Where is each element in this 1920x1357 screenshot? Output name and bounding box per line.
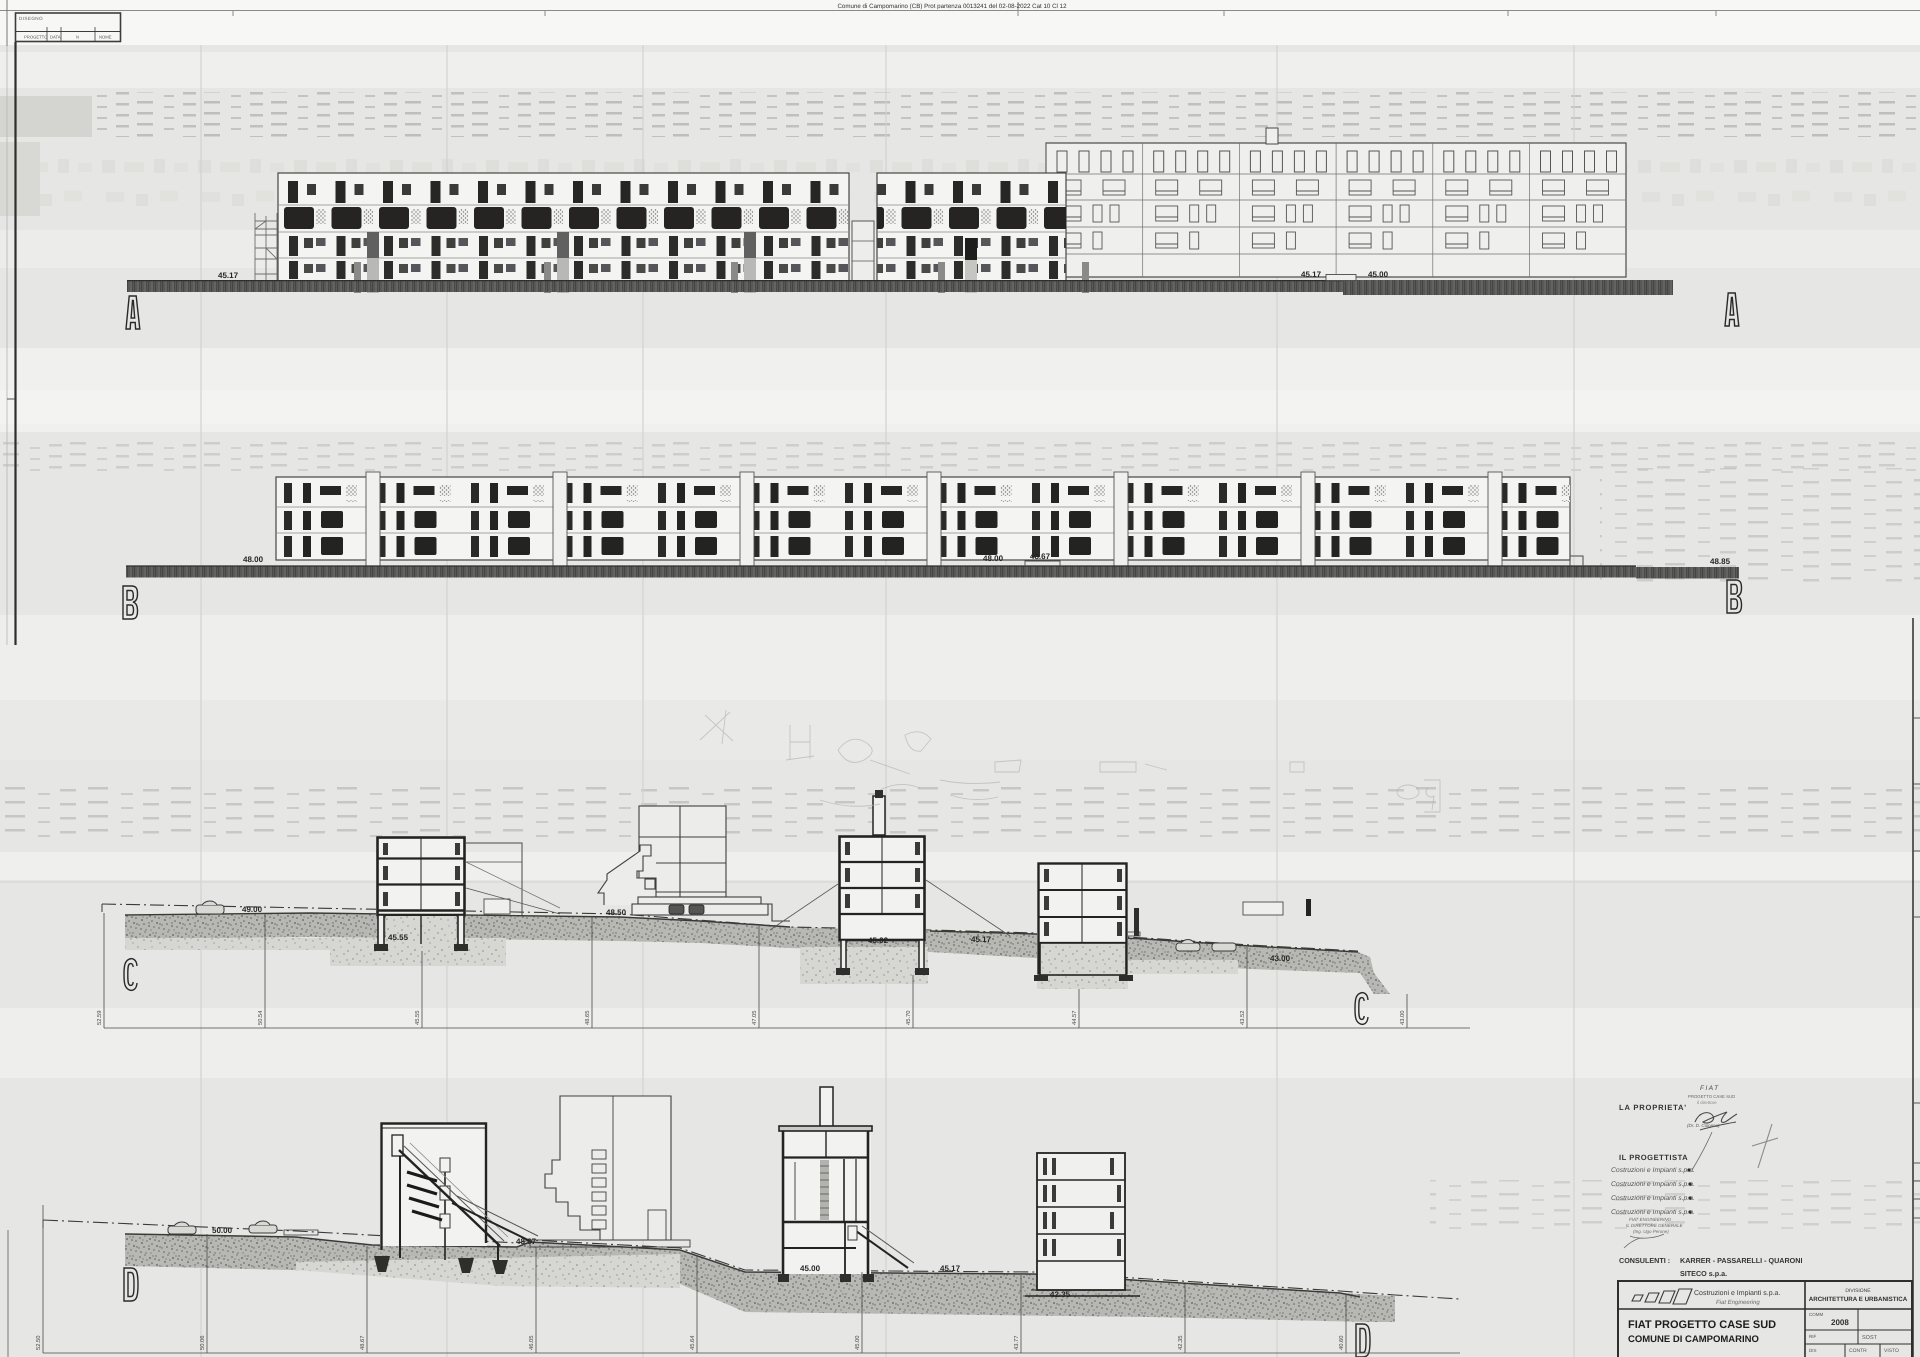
svg-text:48.65: 48.65 [584,1010,591,1025]
svg-text:47.05: 47.05 [751,1010,758,1025]
svg-text:DIS: DIS [1809,1348,1817,1353]
svg-text:FIAT ENGINEERING: FIAT ENGINEERING [1629,1217,1672,1222]
svg-text:43.52: 43.52 [1239,1010,1246,1025]
svg-text:45.00: 45.00 [854,1335,861,1350]
svg-text:48.67: 48.67 [359,1335,366,1350]
svg-text:48.67: 48.67 [1030,552,1051,561]
svg-text:IL DIRETTORE GENERALE: IL DIRETTORE GENERALE [1626,1223,1684,1228]
svg-text:45.55: 45.55 [415,1010,421,1025]
svg-text:50.00: 50.00 [212,1226,233,1235]
svg-text:Costruzioni e Impianti s.p.a.: Costruzioni e Impianti s.p.a. [1611,1167,1695,1174]
svg-text:CONTR: CONTR [1849,1348,1867,1354]
svg-text:50.54: 50.54 [257,1010,264,1025]
svg-text:IL PROGETTISTA: IL PROGETTISTA [1619,1153,1688,1162]
svg-text:45.64: 45.64 [689,1335,696,1350]
svg-text:48.00: 48.00 [983,554,1004,563]
svg-text:45.17: 45.17 [218,271,239,280]
svg-text:45.17: 45.17 [971,935,992,944]
svg-text:46.05: 46.05 [528,1335,535,1350]
svg-text:Costruzioni e Impianti s.p.a.: Costruzioni e Impianti s.p.a. [1694,1289,1780,1297]
svg-text:52.59: 52.59 [96,1010,103,1025]
svg-text:43.00: 43.00 [1270,954,1291,963]
svg-text:(Dr. D. Colonna): (Dr. D. Colonna) [1687,1123,1720,1128]
svg-text:Costruzioni e Impianti s.p.a.: Costruzioni e Impianti s.p.a. [1611,1181,1695,1188]
svg-text:SOST: SOST [1862,1335,1878,1341]
svg-text:Costruzioni e Impianti s.p.a.: Costruzioni e Impianti s.p.a. [1611,1209,1695,1216]
svg-text:43.00: 43.00 [1399,1010,1406,1025]
svg-text:ARCHITETTURA E URBANISTICA: ARCHITETTURA E URBANISTICA [1809,1296,1908,1303]
svg-text:44.57: 44.57 [1072,1010,1078,1025]
svg-text:2008: 2008 [1831,1318,1849,1327]
svg-text:42.35: 42.35 [1177,1335,1184,1350]
svg-text:DISEGNO: DISEGNO [19,16,43,21]
svg-text:KARRER - PASSARELLI - QUARONI: KARRER - PASSARELLI - QUARONI [1680,1256,1802,1265]
svg-text:52.50: 52.50 [35,1335,42,1350]
svg-text:FIAT PROGETTO CASE SUD: FIAT PROGETTO CASE SUD [1628,1319,1776,1331]
svg-text:il direttore: il direttore [1697,1100,1717,1105]
svg-text:40.60: 40.60 [1338,1335,1345,1350]
svg-text:Fiat Engineering: Fiat Engineering [1716,1299,1760,1306]
svg-text:45.17: 45.17 [1301,270,1322,279]
svg-text:49.00: 49.00 [242,905,263,914]
svg-text:45.00: 45.00 [800,1264,821,1273]
svg-text:FIAT: FIAT [1700,1085,1720,1092]
svg-text:VISTO: VISTO [1884,1348,1899,1354]
svg-text:NOME: NOME [99,35,112,40]
svg-text:DIVISIONE: DIVISIONE [1845,1288,1871,1294]
svg-text:45.02: 45.02 [868,936,889,945]
svg-text:COMM: COMM [1809,1312,1823,1317]
svg-text:48.50: 48.50 [606,908,627,917]
svg-text:Costruzioni e Impianti s.p.a.: Costruzioni e Impianti s.p.a. [1611,1195,1695,1202]
svg-text:50.06: 50.06 [199,1335,206,1350]
svg-text:PROGETTO CASE SUD: PROGETTO CASE SUD [1688,1094,1735,1099]
svg-text:(Ing. Ugo Perone): (Ing. Ugo Perone) [1633,1229,1669,1234]
svg-text:PROGETTO: PROGETTO [24,35,48,40]
svg-text:48.85: 48.85 [1710,557,1731,566]
svg-text:DATA: DATA [50,35,61,40]
svg-text:CONSULENTI :: CONSULENTI : [1619,1256,1670,1265]
svg-text:48.00: 48.00 [243,555,264,564]
svg-text:45.55: 45.55 [388,933,409,942]
svg-text:RIF: RIF [1809,1334,1817,1339]
svg-text:N: N [76,35,79,40]
svg-text:43.77: 43.77 [1013,1335,1020,1350]
svg-text:45.17: 45.17 [940,1264,961,1273]
svg-text:Comune di Campomarino (CB) Pro: Comune di Campomarino (CB) Prot partenza… [837,3,1067,10]
svg-text:45.00: 45.00 [1368,270,1389,279]
svg-text:45.70: 45.70 [905,1010,912,1025]
svg-text:42.35: 42.35 [1050,1290,1071,1299]
svg-text:COMUNE DI CAMPOMARINO: COMUNE DI CAMPOMARINO [1628,1334,1759,1345]
svg-text:LA PROPRIETA': LA PROPRIETA' [1619,1103,1687,1112]
svg-text:SITECO s.p.a.: SITECO s.p.a. [1680,1269,1727,1278]
